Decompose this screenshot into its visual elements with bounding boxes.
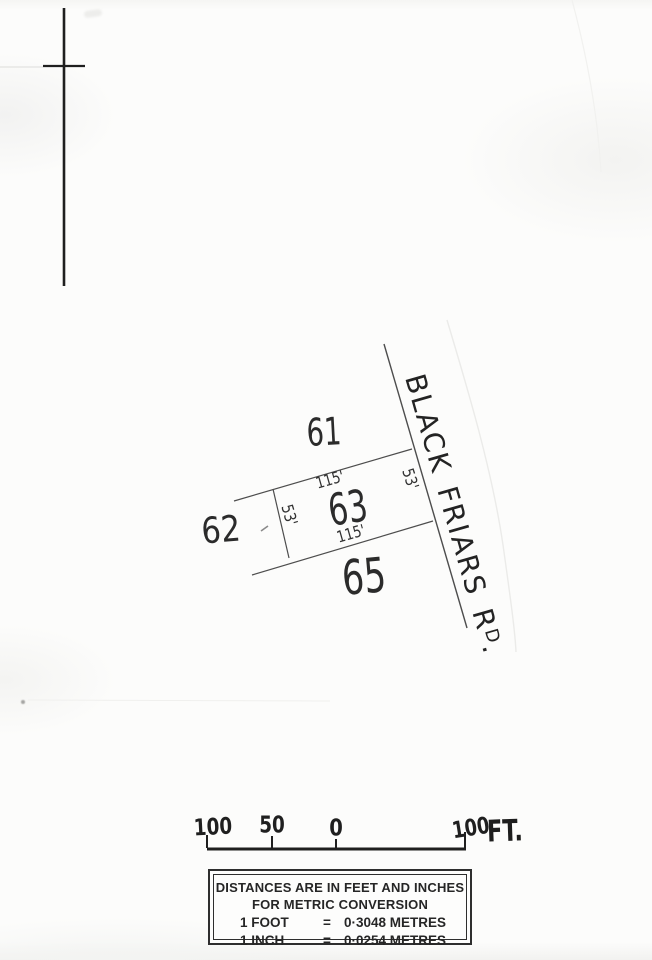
conversion-row-foot: 1 FOOT = 0·3048 METRES <box>240 915 466 930</box>
scale-label-0: 0 <box>329 818 343 841</box>
scale-label-50: 50 <box>259 815 285 838</box>
lot-61-label: 61 <box>306 412 343 452</box>
conversion-inch-value: 0·0254 METRES <box>344 933 470 948</box>
conversion-inch-equals: = <box>310 933 344 948</box>
conversion-title-line2: FOR METRIC CONVERSION <box>214 897 466 912</box>
scanned-survey-plan-page: 61 62 63 65 115' 115' 53' 53' BLACK FRIA… <box>0 0 652 960</box>
scan-line-artifact <box>28 700 330 701</box>
metric-conversion-box-inner: DISTANCES ARE IN FEET AND INCHES FOR MET… <box>213 874 467 940</box>
scale-unit-label: FT. <box>487 816 524 847</box>
scale-label-100-left: 100 <box>193 816 233 841</box>
lot-62-label: 62 <box>200 511 242 550</box>
conversion-foot-equals: = <box>310 915 344 930</box>
scan-dot-artifact <box>21 700 25 704</box>
conversion-title-line1: DISTANCES ARE IN FEET AND INCHES <box>214 880 466 895</box>
lot63-west-dimension: 53' <box>278 503 299 528</box>
metric-conversion-box: DISTANCES ARE IN FEET AND INCHES FOR MET… <box>208 869 472 945</box>
pencil-dash-artifact <box>261 526 268 531</box>
lot-65-label: 65 <box>340 551 388 603</box>
scan-crease-artifact <box>572 0 601 172</box>
conversion-foot-value: 0·3048 METRES <box>344 915 470 930</box>
conversion-foot-qty: 1 FOOT <box>240 915 310 930</box>
conversion-inch-qty: 1 INCH <box>240 933 310 948</box>
scale-label-100-right: 100 <box>451 815 492 844</box>
conversion-row-inch: 1 INCH = 0·0254 METRES <box>240 933 466 948</box>
